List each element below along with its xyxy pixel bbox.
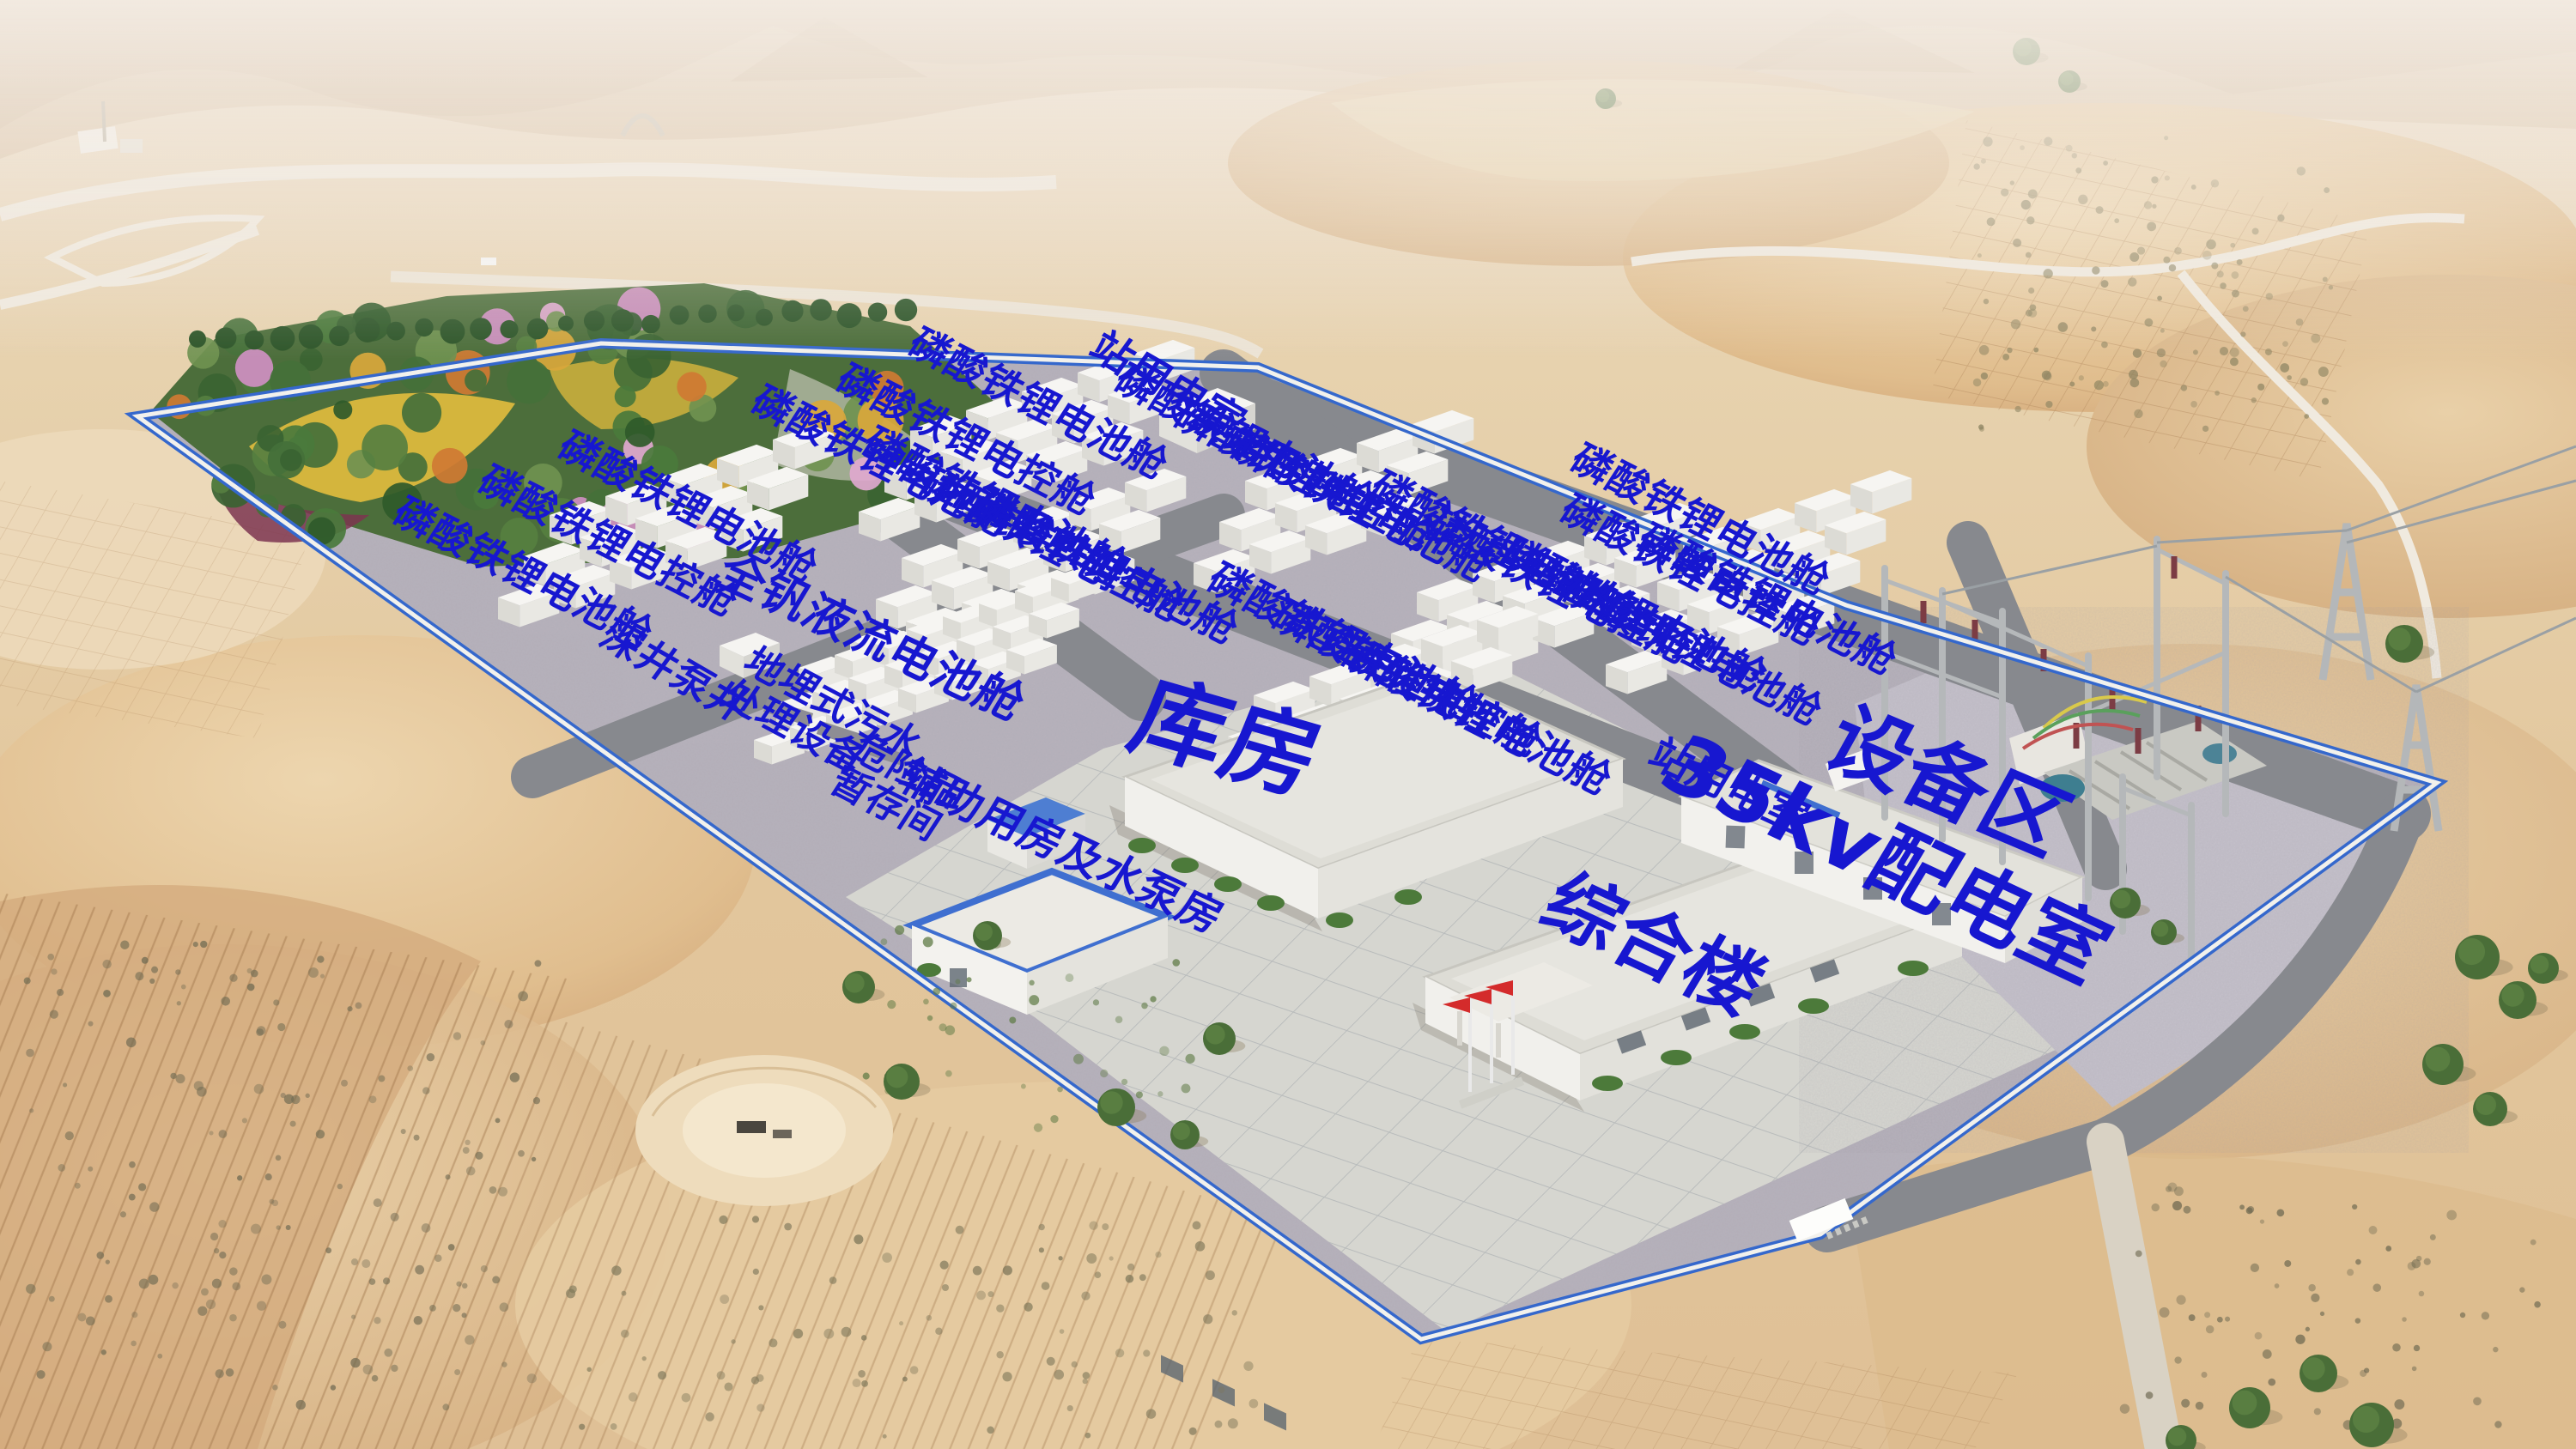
aerial-site-rendering: 磷酸铁锂电池舱磷酸铁锂电控舱磷酸铁锂电池舱磷酸铁锂电池舱磷酸铁锂电控舱磷酸铁锂电… bbox=[0, 0, 2576, 1449]
site-render-canvas bbox=[0, 0, 2576, 1449]
atmospheric-haze bbox=[0, 0, 2576, 361]
transformer-tank-teal bbox=[2040, 774, 2085, 802]
sand-clearing bbox=[635, 1055, 893, 1206]
